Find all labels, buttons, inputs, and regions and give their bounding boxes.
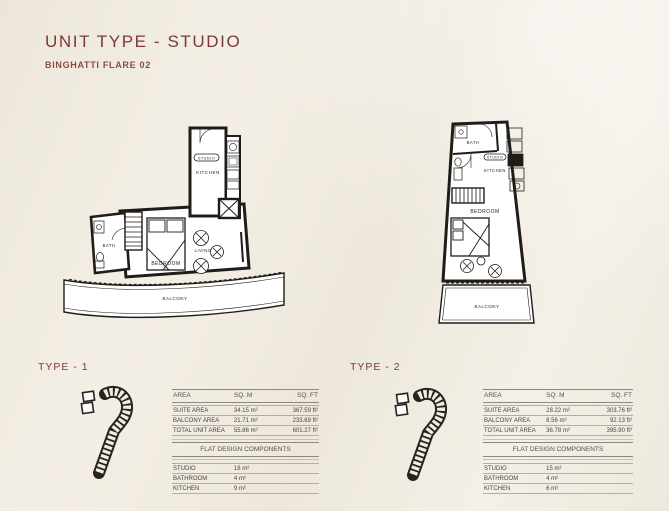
key-plan-annex	[81, 402, 93, 413]
row-label: SUITE AREA	[484, 408, 546, 414]
key-plan-annex	[82, 391, 94, 401]
component-value: 9 m²	[234, 486, 318, 492]
bed-icon	[451, 218, 489, 256]
wardrobe-icon	[452, 188, 484, 203]
area-table-type-1: AREA SQ. M SQ. FT SUITE AREA 34.15 m² 36…	[172, 389, 319, 494]
header-area: AREA	[484, 392, 546, 399]
brochure-page: { "page": { "title": "UNIT TYPE - STUDIO…	[0, 0, 669, 511]
component-label: KITCHEN	[484, 486, 546, 492]
component-value: 18 m²	[234, 466, 318, 472]
row-sqm: 21.71 m²	[234, 418, 286, 424]
row-sqft: 395.90 ft²	[599, 428, 632, 434]
row-sqm: 36.78 m²	[546, 428, 599, 434]
key-plan-cells	[413, 394, 441, 475]
row-sqft: 92.13 ft²	[599, 418, 632, 424]
row-label: SUITE AREA	[173, 408, 234, 414]
table-row: SUITE AREA 28.22 m² 303.76 ft²	[483, 406, 633, 416]
header-sqft: SQ. FT	[599, 392, 632, 399]
table-row: BALCONY AREA 8.56 m² 92.13 ft²	[483, 416, 633, 426]
row-sqm: 55.86 m²	[234, 428, 286, 434]
component-label: STUDIO	[484, 466, 546, 472]
row-label: BALCONY AREA	[173, 418, 234, 424]
header-area: AREA	[173, 392, 234, 399]
floor-plan-type-1: STUDIO KITCHEN BATH BEDROOM LIVING BALCO…	[63, 120, 285, 335]
component-value: 4 m²	[234, 476, 318, 482]
bedroom-label: BEDROOM	[470, 209, 499, 215]
component-row: STUDIO 15 m²	[483, 464, 633, 474]
row-sqft: 233.69 ft²	[286, 418, 318, 424]
area-table-header: AREA SQ. M SQ. FT	[172, 389, 319, 403]
page-title: UNIT TYPE - STUDIO	[45, 32, 241, 52]
table-icon	[477, 257, 485, 265]
row-sqm: 34.15 m²	[234, 408, 286, 414]
component-value: 4 m²	[546, 476, 632, 482]
balcony-label: BALCONY	[474, 304, 499, 309]
row-label: TOTAL UNIT AREA	[173, 428, 234, 434]
key-plan-type-2	[392, 386, 448, 486]
area-table-type-2: AREA SQ. M SQ. FT SUITE AREA 28.22 m² 30…	[483, 389, 633, 494]
component-value: 6 m²	[546, 486, 632, 492]
components-header-wrap: FLAT DESIGN COMPONENTS	[483, 442, 633, 457]
component-label: STUDIO	[173, 466, 234, 472]
table-row: SUITE AREA 34.15 m² 367.59 ft²	[172, 406, 319, 416]
wardrobe-icon	[125, 212, 142, 250]
type-1-label: TYPE - 1	[38, 361, 89, 373]
components-title: FLAT DESIGN COMPONENTS	[483, 442, 633, 457]
bath-label: BATH	[467, 140, 480, 145]
bedroom-label: BEDROOM	[151, 261, 180, 267]
balcony-type-2	[439, 283, 534, 323]
row-sqft: 367.59 ft²	[286, 408, 318, 414]
kitchen-label: KITCHEN	[196, 170, 220, 175]
row-sqm: 28.22 m²	[546, 408, 599, 414]
component-label: BATHROOM	[484, 476, 546, 482]
header-sqft: SQ. FT	[286, 392, 318, 399]
row-sqm: 8.56 m²	[546, 418, 599, 424]
area-table-header: AREA SQ. M SQ. FT	[483, 389, 633, 403]
shaft-icon	[508, 154, 523, 166]
table-row: TOTAL UNIT AREA 36.78 m² 395.90 ft²	[483, 426, 633, 436]
component-row: STUDIO 18 m²	[172, 464, 319, 474]
balcony-label: BALCONY	[162, 296, 187, 301]
key-plan-annex	[396, 393, 408, 403]
row-label: BALCONY AREA	[484, 418, 546, 424]
header-sqm: SQ. M	[234, 392, 286, 399]
key-plan-type-1	[78, 384, 134, 484]
key-plan-cells	[99, 392, 127, 473]
component-row: KITCHEN 9 m²	[172, 484, 319, 494]
studio-tag-label: STUDIO	[198, 157, 215, 161]
table-row: BALCONY AREA 21.71 m² 233.69 ft²	[172, 416, 319, 426]
table-row: TOTAL UNIT AREA 55.86 m² 601.27 ft²	[172, 426, 319, 436]
component-row: BATHROOM 4 m²	[172, 474, 319, 484]
floor-plan-type-2: BATH STUDIO KITCHEN BEDROOM BALCONY	[437, 118, 543, 330]
header-sqm: SQ. M	[546, 392, 599, 399]
component-label: BATHROOM	[173, 476, 234, 482]
row-label: TOTAL UNIT AREA	[484, 428, 546, 434]
living-label: LIVING	[195, 248, 212, 253]
bath-label: BATH	[103, 243, 116, 248]
component-value: 15 m²	[546, 466, 632, 472]
component-row: BATHROOM 4 m²	[483, 474, 633, 484]
studio-tag-label: STUDIO	[487, 156, 503, 160]
components-title: FLAT DESIGN COMPONENTS	[172, 442, 319, 457]
page-subtitle: BINGHATTI FLARE 02	[45, 60, 151, 70]
component-label: KITCHEN	[173, 486, 234, 492]
component-row: KITCHEN 6 m²	[483, 484, 633, 494]
kitchen-label: KITCHEN	[484, 168, 506, 173]
row-sqft: 303.76 ft²	[599, 408, 632, 414]
type-2-label: TYPE - 2	[350, 361, 401, 373]
key-plan-annex	[395, 404, 407, 415]
components-header-wrap: FLAT DESIGN COMPONENTS	[172, 442, 319, 457]
balcony-type-1	[64, 272, 284, 317]
row-sqft: 601.27 ft²	[286, 428, 318, 434]
